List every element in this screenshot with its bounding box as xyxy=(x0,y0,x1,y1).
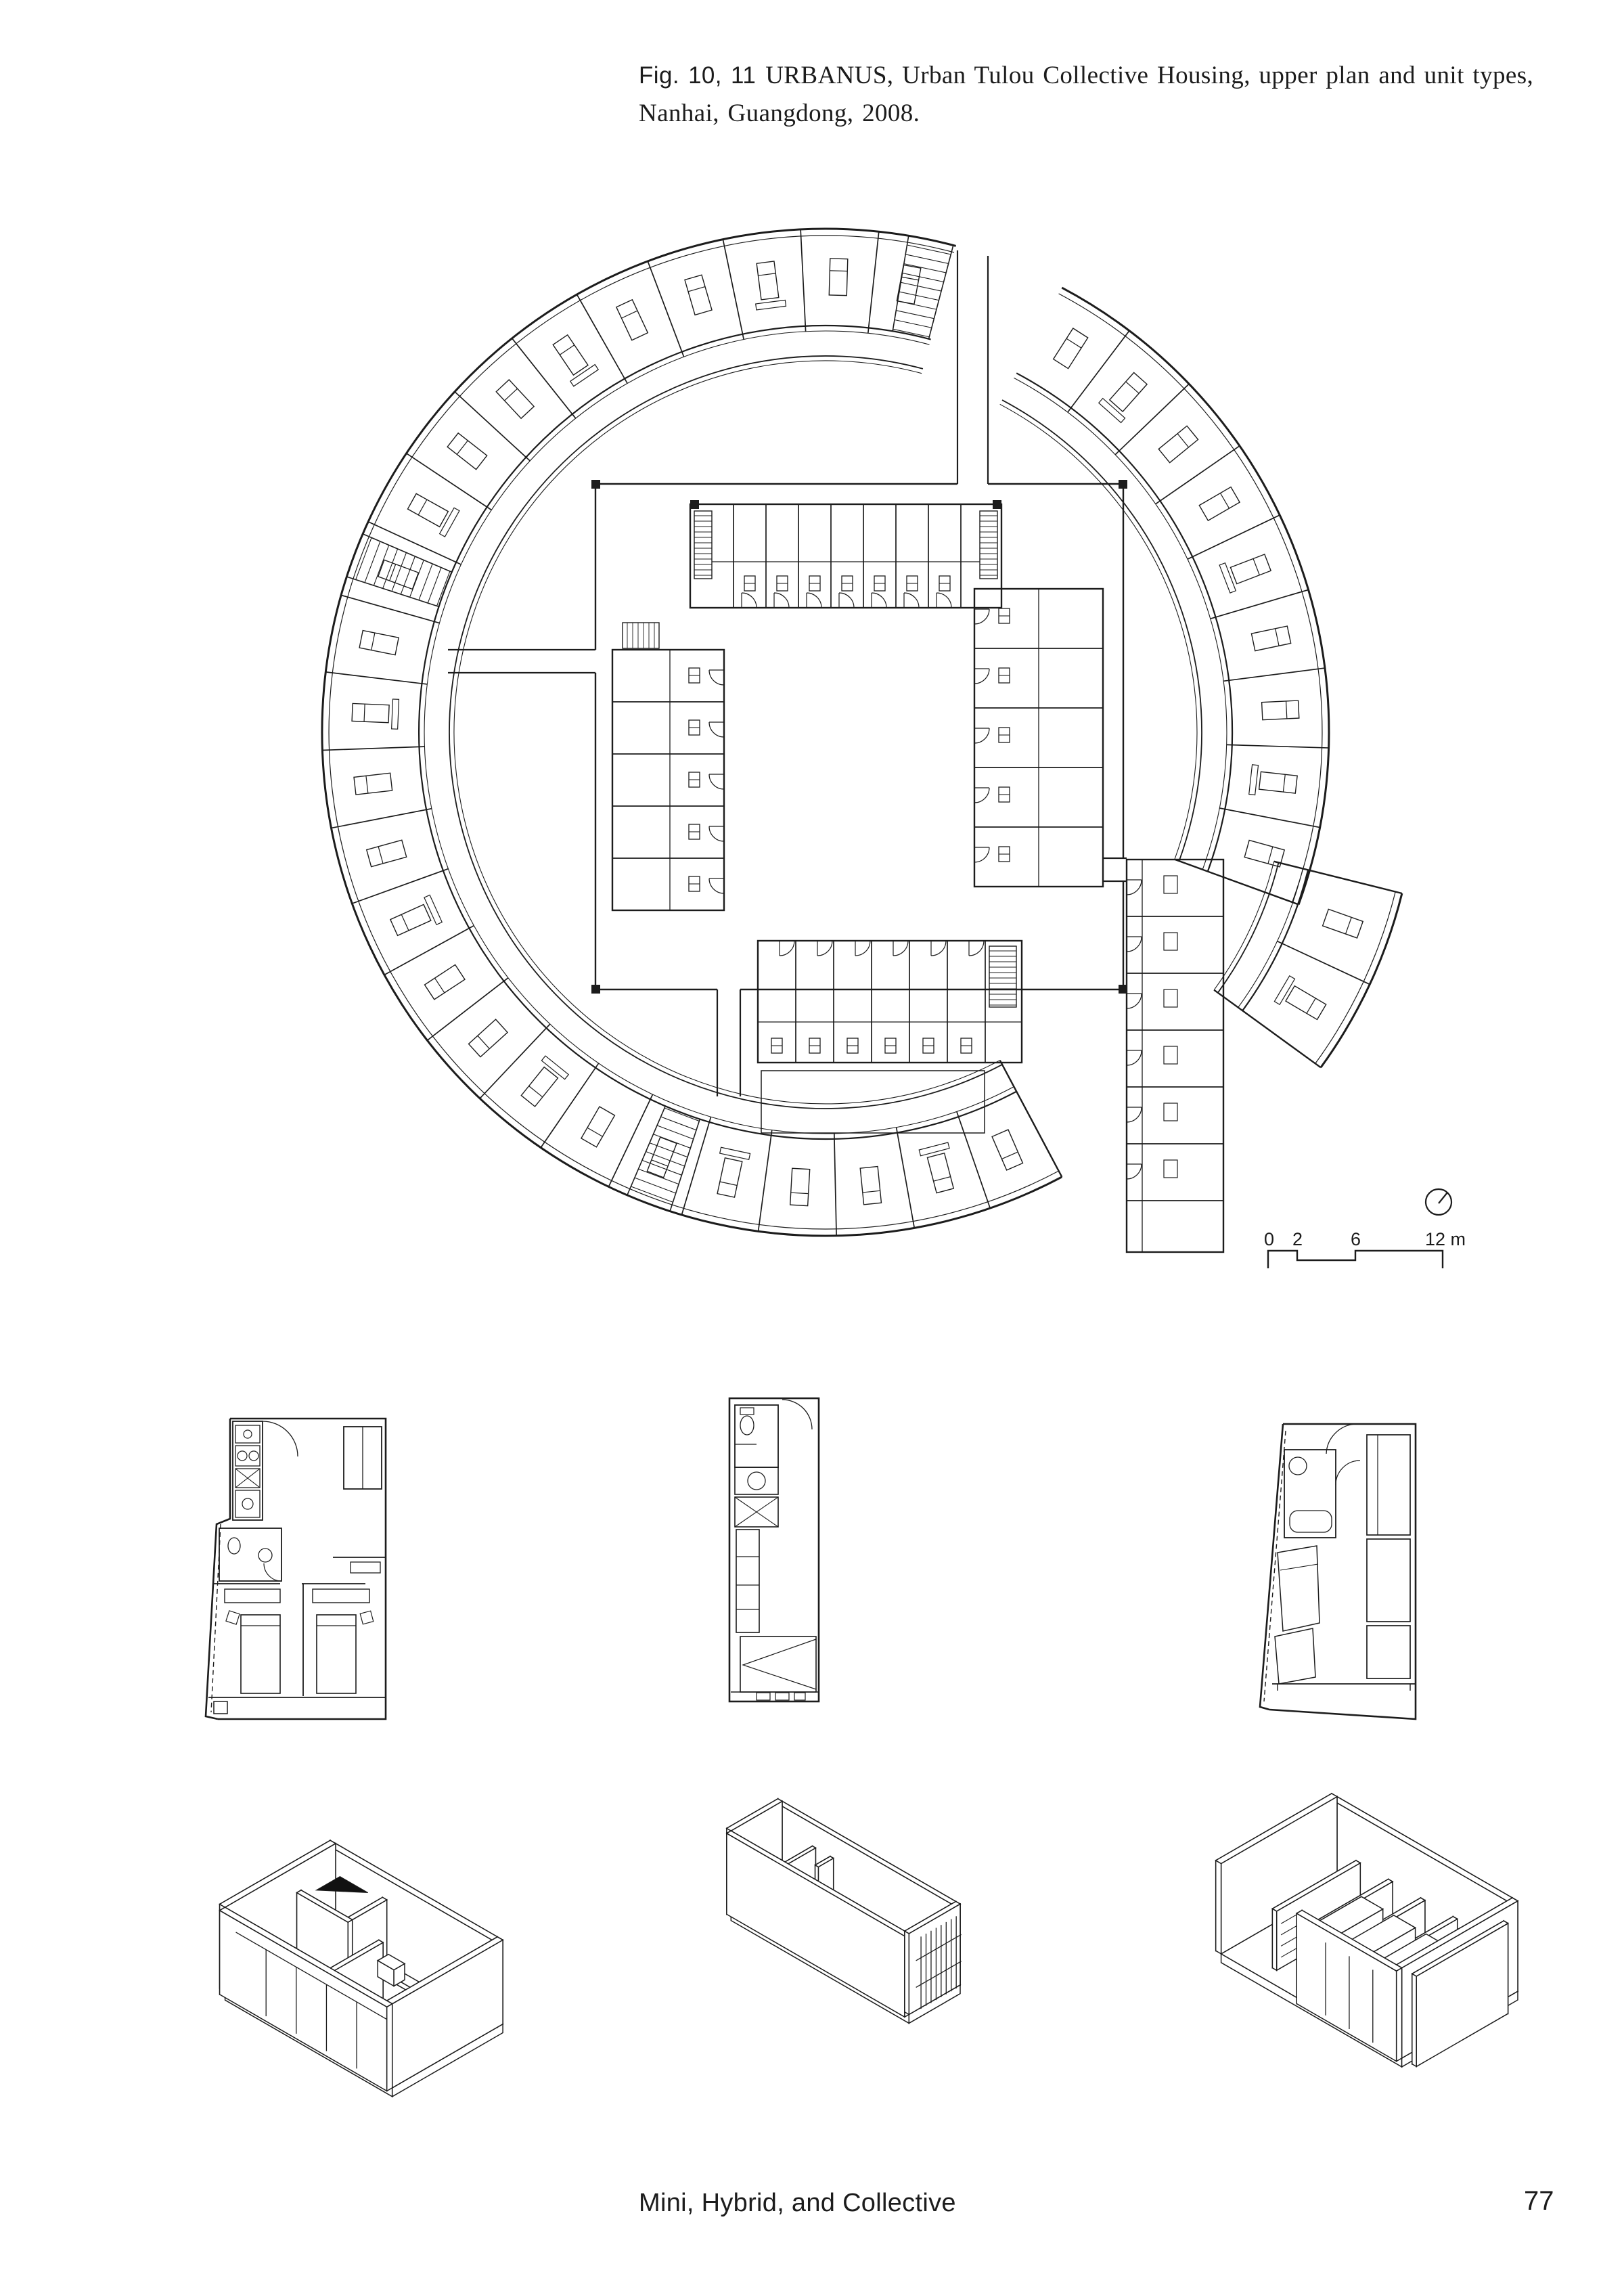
upper-floor-plan-figure xyxy=(284,183,1435,1293)
scale-bar-line xyxy=(1268,1251,1443,1268)
page-number: 77 xyxy=(1524,2186,1554,2217)
running-footer: Mini, Hybrid, and Collective xyxy=(639,2189,956,2218)
unit-plan-two-bed xyxy=(200,1412,401,1726)
caption-line2: Nanhai, Guangdong, 2008. xyxy=(639,99,920,127)
figure-label: Fig. 10, 11 xyxy=(639,62,756,89)
scale-bar: 0 2 6 12 m xyxy=(1257,1183,1474,1278)
figure-caption: Fig. 10, 11URBANUS, Urban Tulou Collecti… xyxy=(639,57,1573,133)
scale-label-2: 2 xyxy=(1292,1229,1303,1249)
caption-line1: URBANUS, Urban Tulou Collective Housing,… xyxy=(765,62,1533,89)
scale-label-0: 0 xyxy=(1264,1229,1274,1249)
book-page: Fig. 10, 11URBANUS, Urban Tulou Collecti… xyxy=(0,0,1624,2293)
unit-plan-studio xyxy=(717,1394,826,1707)
scale-label-6: 6 xyxy=(1351,1229,1361,1249)
north-arrow-icon xyxy=(1426,1189,1451,1215)
axonometric-unit-two-bed xyxy=(200,1819,536,2155)
axonometric-unit-studio xyxy=(701,1777,1003,2113)
unit-plan-corner xyxy=(1255,1410,1420,1724)
axonometric-unit-dorm xyxy=(1209,1772,1558,2127)
scale-label-12m: 12 m xyxy=(1425,1229,1466,1249)
